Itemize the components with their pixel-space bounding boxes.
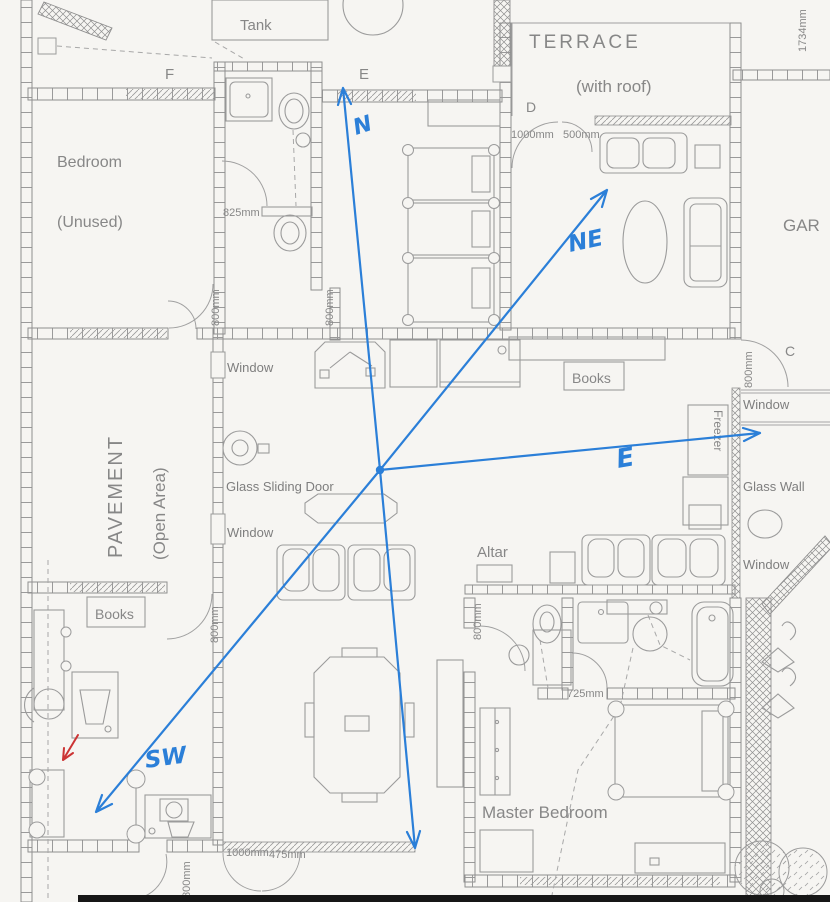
- compass-center-dot: [376, 466, 384, 474]
- dim-1000-bottom: 1000mm: [226, 847, 269, 859]
- scan-edge-bar: [78, 895, 830, 902]
- window-label-4: Window: [743, 557, 790, 572]
- fan: [223, 431, 257, 465]
- books-label-study: Books: [95, 606, 134, 622]
- altar-sofas: [477, 505, 725, 585]
- service-lines: [48, 42, 690, 898]
- freezer-label: Freezer: [711, 410, 725, 451]
- bedroom-status: (Unused): [57, 214, 123, 231]
- dim-800-d: 800mm: [209, 606, 221, 643]
- glass-sliding-door-label: Glass Sliding Door: [226, 479, 334, 494]
- southwest-label: SW: [143, 742, 190, 774]
- floorplan-scan: Tank TERRACE (with roof) F E D C Bedroom…: [0, 0, 830, 902]
- bedroom-label: Bedroom: [57, 154, 122, 171]
- toilet: [274, 215, 306, 251]
- altar-label: Altar: [477, 544, 508, 561]
- east-arrow: [380, 428, 760, 470]
- altar-table: [477, 565, 512, 582]
- walls: [21, 0, 830, 902]
- window-label-2: Window: [227, 525, 274, 540]
- grid-c: C: [785, 343, 795, 359]
- window-label-1: Window: [227, 360, 274, 375]
- pavement-label: PAVEMENT: [105, 435, 127, 558]
- floorplan-svg: Tank TERRACE (with roof) F E D C Bedroom…: [0, 0, 830, 902]
- master-bedroom-label: Master Bedroom: [482, 803, 608, 822]
- kitchen-counters: [315, 340, 520, 388]
- dim-800-a: 800mm: [210, 289, 222, 326]
- southwest-arrow: [96, 470, 380, 812]
- basin: [279, 93, 309, 129]
- pavement-note: (Open Area): [150, 467, 169, 560]
- bush-large-2: [779, 848, 827, 896]
- dim-1734: 1734mm: [797, 9, 809, 52]
- books-label-living: Books: [572, 370, 611, 386]
- north-label: N: [350, 111, 375, 140]
- dim-500: 500mm: [563, 129, 600, 141]
- living-sofa-set: [600, 133, 727, 287]
- garden-label: GAR: [783, 216, 820, 235]
- east-label: E: [614, 442, 637, 475]
- shower: [226, 78, 272, 121]
- dining-tables: [403, 145, 500, 326]
- glass-wall-label: Glass Wall: [743, 479, 805, 494]
- north-arrow: [338, 88, 380, 470]
- terrace-label: TERRACE: [529, 32, 641, 53]
- dim-800-b: 800mm: [324, 289, 336, 326]
- dim-800-c: 800mm: [743, 351, 755, 388]
- dim-800-e: 800mm: [472, 603, 484, 640]
- bush-small: [748, 510, 782, 538]
- grid-f: F: [165, 66, 174, 83]
- terrace-note: (with roof): [576, 77, 652, 96]
- window-label-3: Window: [743, 397, 790, 412]
- dim-1000-top: 1000mm: [511, 129, 554, 141]
- grid-e: E: [359, 66, 369, 83]
- dim-475: 475mm: [269, 849, 306, 861]
- dim-725: 725mm: [567, 688, 604, 700]
- grid-d: D: [526, 99, 536, 115]
- dim-825: 825mm: [223, 207, 260, 219]
- tank-label: Tank: [240, 17, 272, 34]
- compass-annotations: N NE E SW: [96, 88, 760, 848]
- northeast-label: NE: [566, 225, 606, 258]
- red-marker-arrow: [63, 735, 78, 760]
- lounge-sofas: [277, 545, 415, 600]
- dim-800-f: 800mm: [181, 861, 193, 898]
- round-tank: [343, 0, 403, 35]
